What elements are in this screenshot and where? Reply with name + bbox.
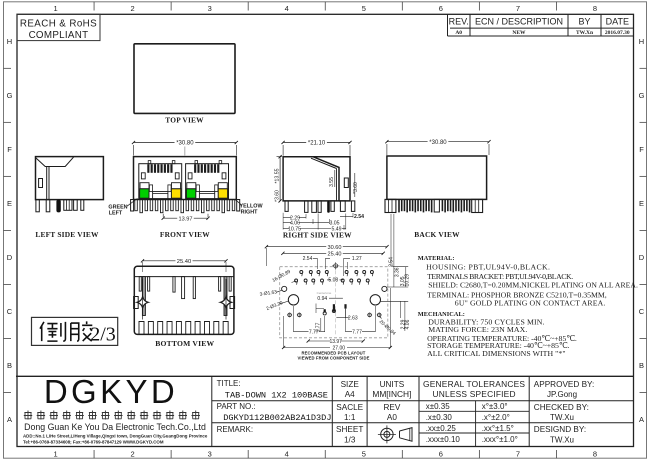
svg-text:ECN / DESCRIPTION: ECN / DESCRIPTION (475, 17, 563, 27)
svg-text:SIZE: SIZE (341, 380, 360, 389)
svg-text:3.55: 3.55 (329, 177, 335, 187)
svg-text:C: C (639, 307, 645, 316)
svg-text:MATERIAL:: MATERIAL: (418, 255, 455, 262)
svg-text:VIEWED FROM COMPONENT SIDE: VIEWED FROM COMPONENT SIDE (298, 356, 370, 361)
svg-text:5: 5 (362, 450, 366, 459)
svg-text:.x°±2.0°: .x°±2.0° (482, 413, 510, 422)
svg-text:5: 5 (362, 4, 366, 13)
svg-text:UNLESS SPECIFIED: UNLESS SPECIFIED (432, 389, 515, 399)
svg-text:*13.55: *13.55 (274, 168, 280, 183)
svg-text:TW.Xu: TW.Xu (550, 435, 574, 444)
svg-text:A0: A0 (455, 30, 462, 36)
svg-text:D: D (7, 253, 13, 262)
svg-text:NEW: NEW (512, 30, 526, 36)
svg-text:4.06: 4.06 (290, 221, 300, 227)
svg-text:*30.80: *30.80 (429, 140, 447, 146)
svg-text:1.27: 1.27 (352, 256, 362, 262)
svg-text:LEFT SIDE VIEW: LEFT SIDE VIEW (35, 230, 99, 239)
svg-text:.x±0.30: .x±0.30 (426, 413, 453, 422)
svg-text:7.77: 7.77 (309, 329, 319, 335)
svg-text:H: H (7, 37, 12, 46)
svg-text:4.06: 4.06 (405, 319, 411, 329)
svg-text:MM[INCH]: MM[INCH] (372, 389, 411, 399)
svg-text:SHEET: SHEET (336, 425, 363, 434)
svg-text:.xxx°±1.0°: .xxx°±1.0° (482, 435, 518, 444)
svg-text:2016.07.30: 2016.07.30 (605, 30, 630, 36)
svg-text:DATE: DATE (606, 17, 629, 27)
svg-text:2.54: 2.54 (354, 214, 364, 220)
svg-text:ALL CRITICAL DIMENSIONS WITH ": ALL CRITICAL DIMENSIONS WITH "*" (427, 349, 565, 358)
svg-text:RIGHT: RIGHT (241, 209, 258, 215)
svg-text:BY: BY (578, 17, 590, 27)
svg-text:2.54: 2.54 (388, 257, 394, 267)
svg-text:APPROVED BY:: APPROVED BY: (534, 380, 595, 389)
svg-text:RIGHT SIDE VIEW: RIGHT SIDE VIEW (283, 231, 352, 240)
svg-text:BACK VIEW: BACK VIEW (414, 230, 460, 239)
svg-text:CenterLine: CenterLine (317, 291, 332, 295)
svg-text:A: A (7, 415, 12, 424)
svg-text:1: 1 (53, 450, 57, 459)
svg-text:Tel:+86-0769-87334608; Fax:+86: Tel:+86-0769-87334608; Fax:+86-0769-8784… (23, 439, 164, 444)
svg-text:DGKYD112B002AB2A1D3DJ: DGKYD112B002AB2A1D3DJ (223, 413, 331, 423)
svg-text:G: G (7, 91, 13, 100)
svg-text:0.94: 0.94 (317, 296, 327, 302)
svg-text:REMARK:: REMARK: (217, 425, 253, 434)
svg-text:A0: A0 (387, 413, 397, 422)
svg-text:1: 1 (53, 4, 57, 13)
svg-text:DGKYD: DGKYD (44, 373, 178, 410)
svg-text:TW.Xn: TW.Xn (576, 30, 593, 36)
svg-text:G: G (639, 91, 645, 100)
svg-text:TOP VIEW: TOP VIEW (165, 116, 204, 125)
svg-text:6U" GOLD PLATING ON CONTACT AR: 6U" GOLD PLATING ON CONTACT AREA. (455, 299, 606, 308)
svg-text:3: 3 (208, 450, 212, 459)
svg-text:6: 6 (439, 4, 443, 13)
svg-text:COMPLIANT: COMPLIANT (29, 30, 89, 41)
svg-text:REV.: REV. (449, 17, 469, 27)
svg-text:6: 6 (439, 450, 443, 459)
svg-text:RECOMMENDED PCB LAYOUT: RECOMMENDED PCB LAYOUT (302, 350, 366, 355)
svg-text:REV: REV (383, 403, 400, 412)
svg-text:D: D (639, 253, 645, 262)
svg-text:2.54: 2.54 (303, 256, 313, 262)
svg-text:1:1: 1:1 (344, 413, 356, 422)
svg-text:4: 4 (285, 4, 289, 13)
svg-text:13.97: 13.97 (329, 339, 342, 345)
svg-text:REACH & RoHS: REACH & RoHS (20, 18, 97, 29)
svg-text:F: F (7, 145, 12, 154)
svg-text:LEFT: LEFT (109, 210, 123, 216)
svg-text:25.40: 25.40 (328, 251, 342, 257)
svg-text:B: B (639, 361, 644, 370)
svg-text:3: 3 (208, 4, 212, 13)
svg-text:F: F (639, 145, 644, 154)
svg-text:30.60: 30.60 (328, 245, 342, 251)
svg-text:TW.Xu: TW.Xu (550, 413, 574, 422)
svg-text:A: A (639, 415, 644, 424)
svg-text:CHECKED BY:: CHECKED BY: (534, 403, 589, 412)
svg-text:*30.80: *30.80 (176, 141, 194, 147)
svg-text:25.40: 25.40 (177, 259, 192, 265)
svg-text:*3.60: *3.60 (353, 182, 359, 194)
svg-text:Dong Guan Ke You Da Electronic: Dong Guan Ke You Da Electronic Tech.Co.,… (24, 422, 206, 432)
svg-text:SACLE: SACLE (336, 403, 363, 412)
svg-text:10.29: 10.29 (404, 274, 410, 287)
svg-text:1/3: 1/3 (344, 435, 356, 444)
svg-text:BOTTOM VIEW: BOTTOM VIEW (155, 339, 214, 348)
svg-text:B: B (7, 361, 12, 370)
svg-text:PART NO.:: PART NO.: (217, 402, 256, 411)
svg-text:TITLE:: TITLE: (217, 379, 241, 388)
svg-text:C: C (7, 307, 13, 316)
svg-text:.xx±0.25: .xx±0.25 (426, 424, 457, 433)
svg-text:8: 8 (593, 4, 597, 13)
svg-text:2: 2 (131, 450, 135, 459)
svg-text:7.77: 7.77 (352, 329, 362, 335)
svg-text:2/3: 2/3 (90, 324, 116, 346)
svg-text:JP.Gong: JP.Gong (547, 390, 577, 399)
svg-text:.xx°±1.5°: .xx°±1.5° (482, 424, 514, 433)
svg-text:x±0.35: x±0.35 (426, 402, 451, 411)
svg-text:x°±3.0°: x°±3.0° (482, 402, 508, 411)
svg-text:4: 4 (285, 450, 289, 459)
svg-text:3.05: 3.05 (329, 221, 339, 227)
svg-text:7: 7 (516, 4, 520, 13)
svg-text:HOUSING: PBT,UL94V-0,BLACK.: HOUSING: PBT,UL94V-0,BLACK. (426, 262, 550, 271)
svg-text:ADD::No.1 LiHe Street,LiHeng V: ADD::No.1 LiHe Street,LiHeng Village,Qin… (23, 433, 208, 438)
svg-text:SHIELD: C2680,T=0.20MM,NICKEL: SHIELD: C2680,T=0.20MM,NICKEL PLATING ON… (428, 281, 638, 290)
svg-text:E: E (7, 199, 12, 208)
svg-text:A4: A4 (345, 390, 355, 399)
svg-text:8: 8 (593, 450, 597, 459)
svg-text:H: H (639, 37, 644, 46)
svg-text:5.08: 5.08 (328, 278, 338, 284)
svg-text:TAB-DOWN 1X2 100BASE: TAB-DOWN 1X2 100BASE (225, 391, 328, 401)
svg-text:UNITS: UNITS (380, 380, 405, 389)
svg-text:2: 2 (131, 4, 135, 13)
svg-text:3.36: 3.36 (395, 267, 401, 277)
svg-text:7: 7 (516, 450, 520, 459)
svg-text:GENERAL TOLERANCES: GENERAL TOLERANCES (423, 379, 525, 389)
svg-text:FRONT VIEW: FRONT VIEW (160, 230, 210, 239)
svg-text:13.97: 13.97 (179, 216, 193, 222)
svg-text:.xxx±0.10: .xxx±0.10 (426, 435, 461, 444)
svg-text:*3.60: *3.60 (275, 190, 281, 202)
svg-text:E: E (639, 199, 644, 208)
svg-text:2.63: 2.63 (348, 316, 358, 322)
svg-text:*21.10: *21.10 (308, 141, 326, 147)
svg-text:MATING FORCE: 23N MAX.: MATING FORCE: 23N MAX. (428, 325, 527, 334)
svg-text:DESIGND BY:: DESIGND BY: (534, 425, 586, 434)
